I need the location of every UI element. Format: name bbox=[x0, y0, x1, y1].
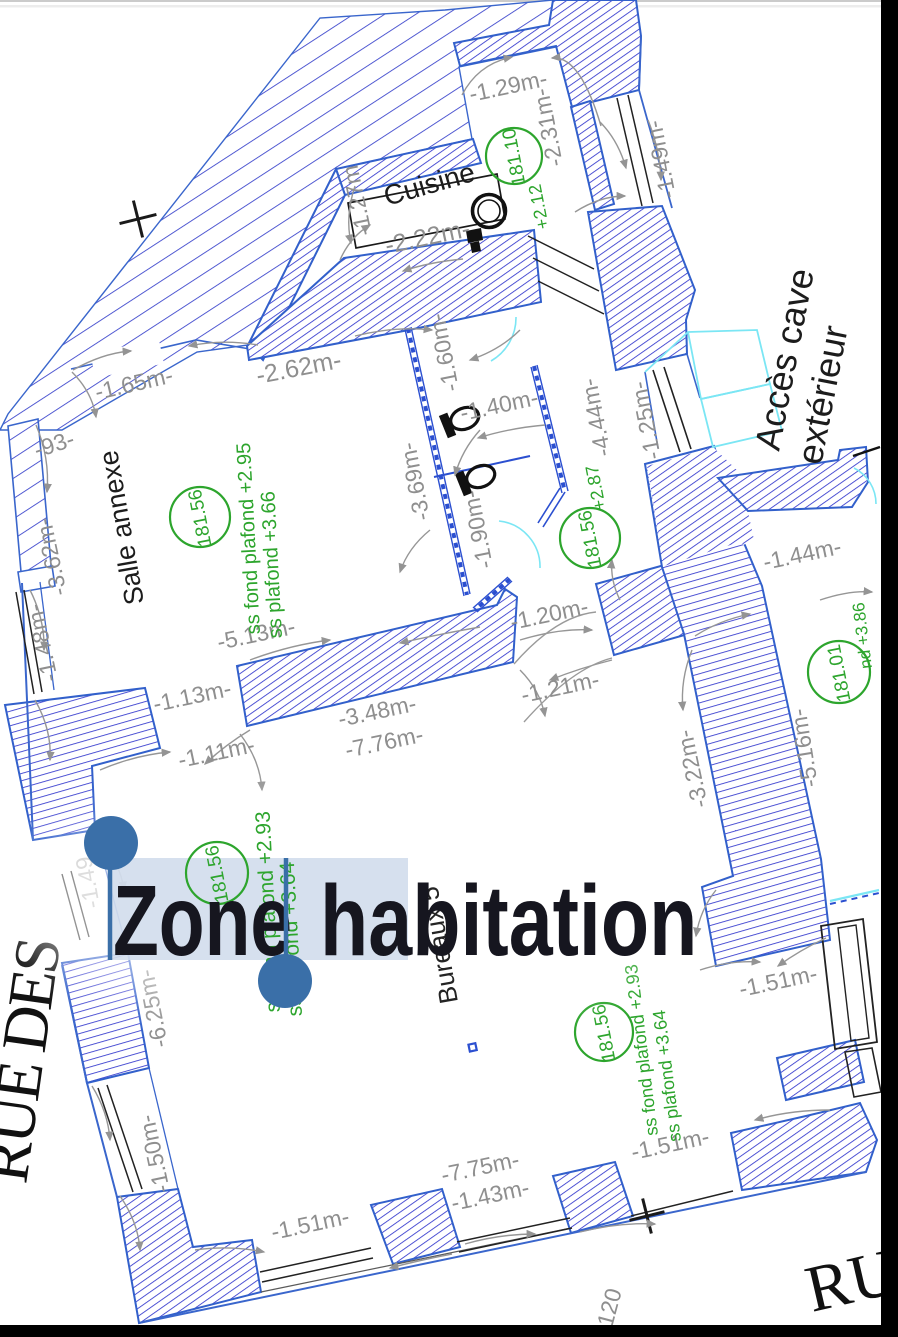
svg-text:habitation: habitation bbox=[320, 865, 697, 977]
svg-text:Zone: Zone bbox=[113, 864, 292, 976]
